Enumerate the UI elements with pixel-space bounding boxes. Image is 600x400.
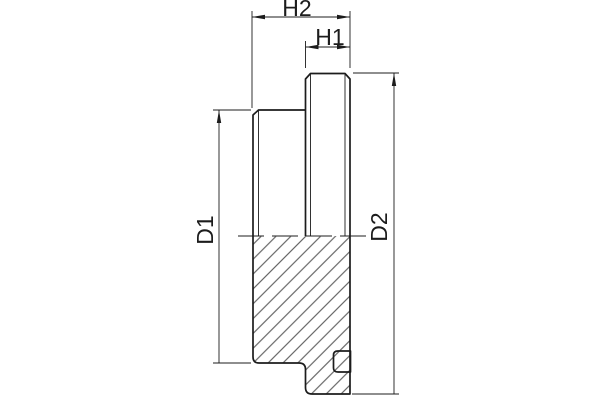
chamfer-edge-lines <box>259 75 346 237</box>
drawing-root: H2 H1 D1 D2 <box>192 0 399 394</box>
d2-arrow-top <box>392 73 396 86</box>
h2-dimension: H2 <box>252 0 350 108</box>
h2-arrow-right <box>337 15 350 19</box>
h1-dimension: H1 <box>306 24 351 68</box>
d2-label: D2 <box>366 212 392 241</box>
section-hatch-fill <box>253 236 350 394</box>
part-upper-outline <box>253 74 350 237</box>
drawing-canvas: H2 H1 D1 D2 <box>0 0 600 400</box>
d1-label: D1 <box>192 215 218 244</box>
h2-label: H2 <box>282 0 311 21</box>
technical-drawing: H2 H1 D1 D2 <box>0 0 600 400</box>
h1-label: H1 <box>315 24 344 50</box>
d1-dimension: D1 <box>192 110 251 363</box>
d2-dimension: D2 <box>352 73 399 394</box>
h2-arrow-left <box>252 15 265 19</box>
d1-arrow-top <box>217 110 221 123</box>
